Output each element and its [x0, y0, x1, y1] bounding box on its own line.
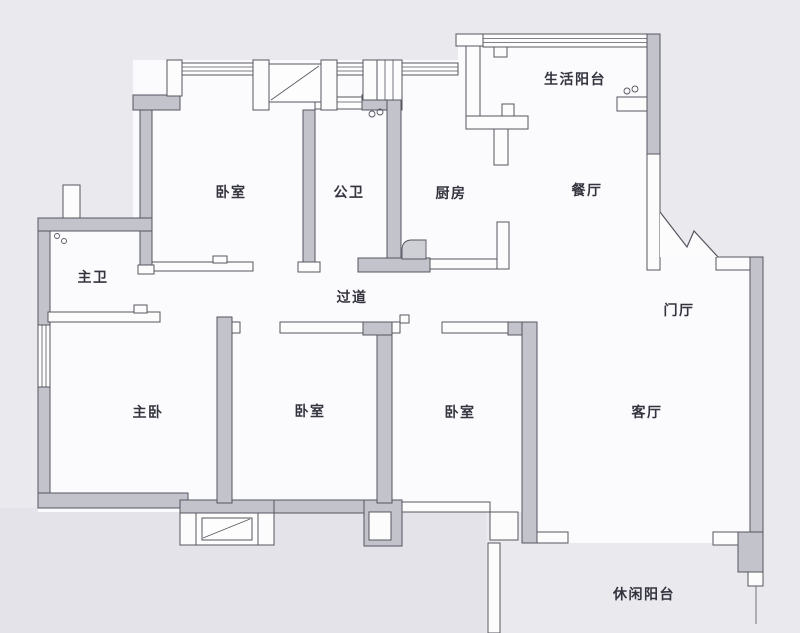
room-label-hallway: 过道	[337, 287, 368, 307]
room-label-master-bedroom: 主卧	[133, 402, 164, 422]
flue-shaft	[377, 60, 402, 100]
room-label-bedroom-middle: 卧室	[295, 401, 326, 421]
room-label-master-bathroom: 主卫	[78, 267, 109, 287]
room-label-foyer: 门厅	[664, 300, 695, 320]
room-label-dining-room: 餐厅	[572, 180, 603, 200]
room-label-bedroom-top: 卧室	[216, 182, 247, 202]
room-label-service-balcony: 生活阳台	[544, 69, 606, 89]
room-label-living-room: 客厅	[632, 402, 663, 422]
room-label-public-bathroom: 公卫	[334, 182, 365, 202]
room-label-leisure-balcony: 休闲阳台	[613, 584, 675, 604]
room-label-bedroom-right: 卧室	[445, 402, 476, 422]
kitchen-door-leaf	[402, 240, 426, 259]
bay-window-bottom	[180, 513, 274, 545]
room-label-kitchen: 厨房	[436, 183, 467, 203]
bay-window-top	[269, 64, 321, 102]
floor-plan-canvas: 卧室 公卫 厨房 餐厅 生活阳台 主卫 过道 门厅 主卧 卧室 卧室 客厅 休闲…	[0, 0, 800, 633]
entry-door	[660, 212, 718, 257]
